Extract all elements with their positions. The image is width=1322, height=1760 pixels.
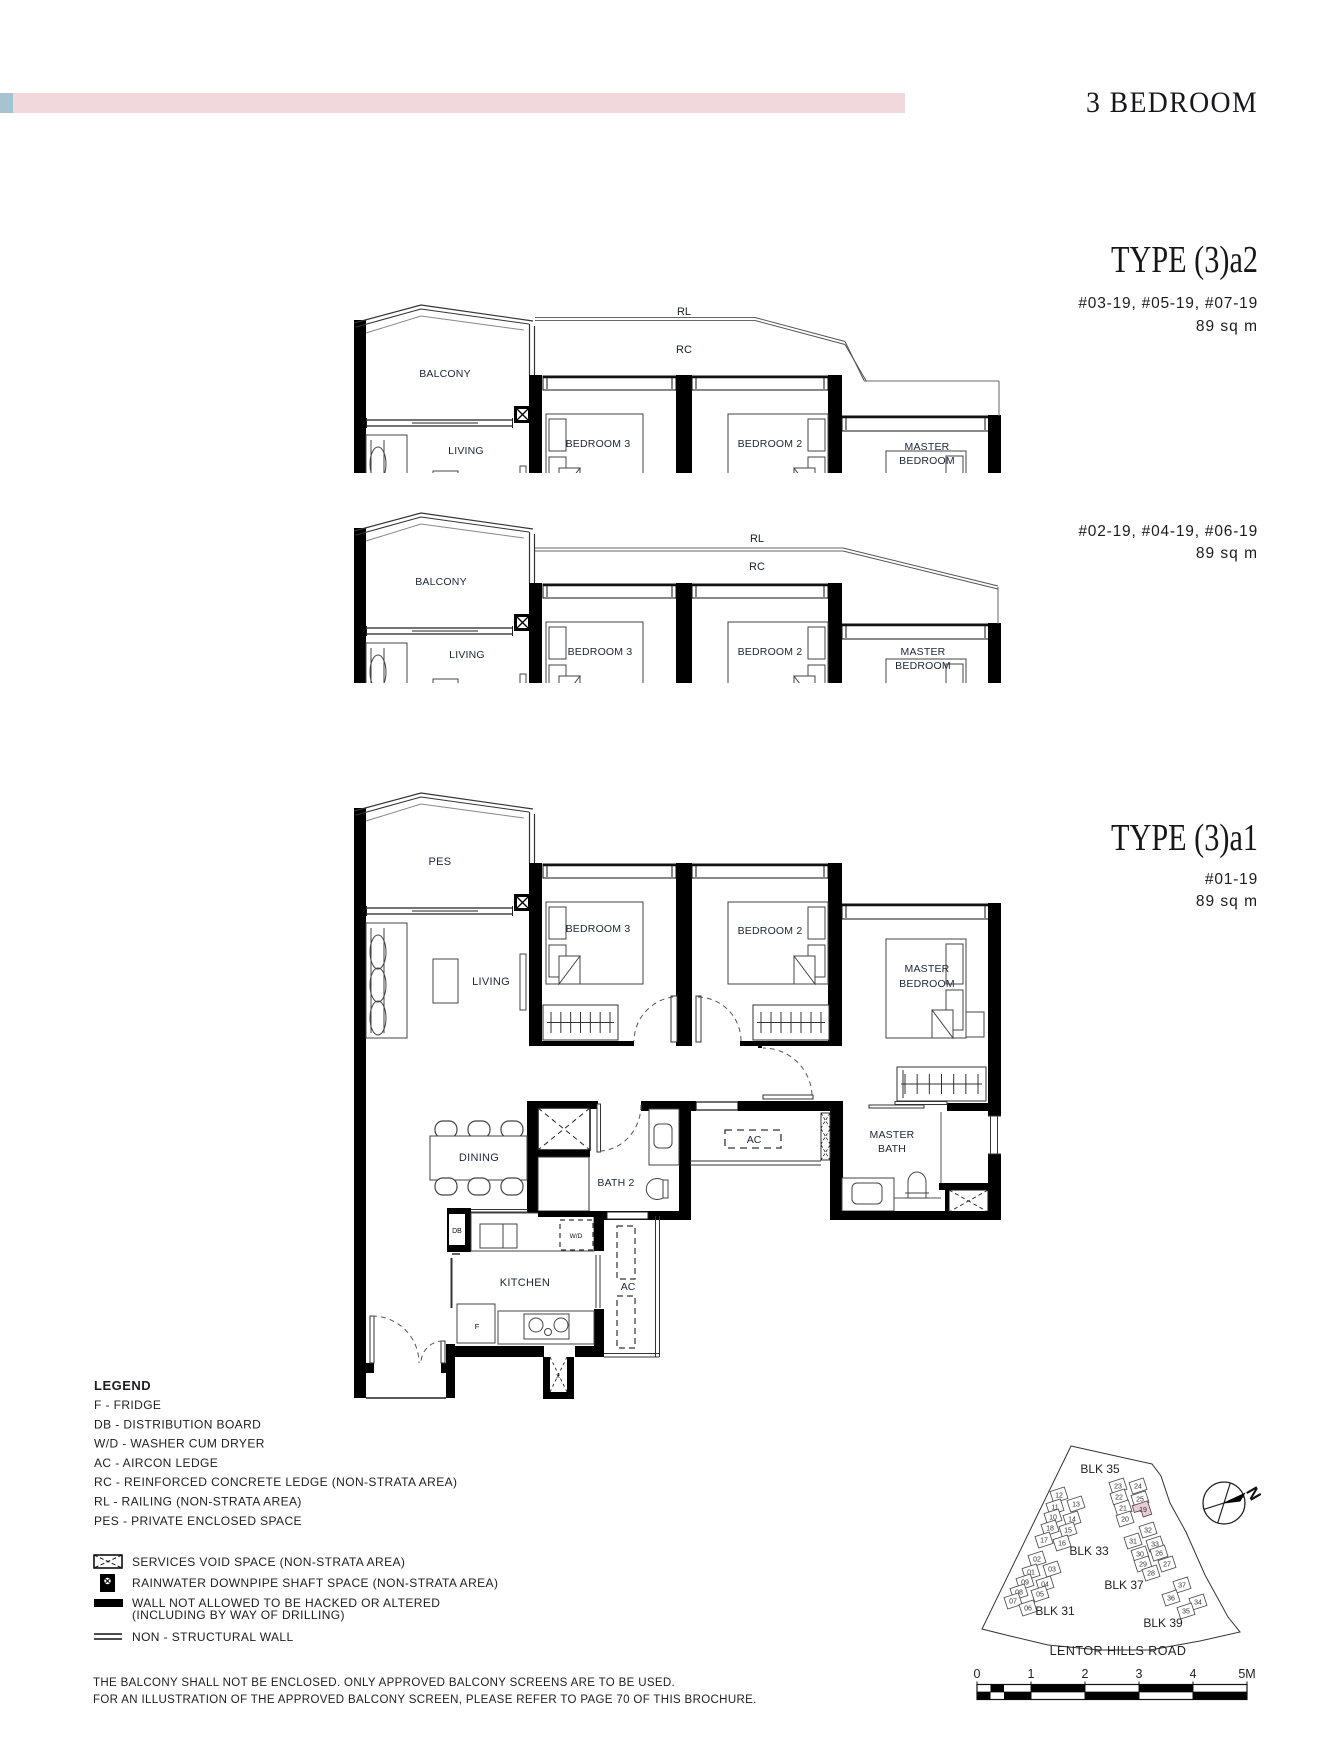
svg-text:BLK 35: BLK 35 [1080,1462,1120,1476]
svg-text:LIVING: LIVING [449,649,485,661]
svg-text:BEDROOM: BEDROOM [899,978,955,990]
svg-text:26: 26 [1155,1551,1163,1558]
svg-text:35: 35 [1182,1609,1190,1616]
svg-text:BATH 2: BATH 2 [597,1177,634,1189]
svg-text:RL - RAILING (NON-STRATA AREA): RL - RAILING (NON-STRATA AREA) [94,1495,302,1509]
svg-text:3 BEDROOM: 3 BEDROOM [1086,86,1258,119]
svg-text:THE BALCONY SHALL NOT BE ENCLO: THE BALCONY SHALL NOT BE ENCLOSED. ONLY … [93,1677,675,1689]
svg-text:05: 05 [1036,1592,1044,1599]
svg-text:BEDROOM 3: BEDROOM 3 [566,923,631,935]
svg-text:BEDROOM 2: BEDROOM 2 [738,646,803,658]
svg-text:DINING: DINING [459,1152,499,1164]
svg-text:36: 36 [1167,1596,1175,1603]
svg-text:34: 34 [1194,1600,1202,1607]
svg-text:NON - STRUCTURAL WALL: NON - STRUCTURAL WALL [132,1630,294,1644]
svg-text:RAINWATER DOWNPIPE SHAFT SPACE: RAINWATER DOWNPIPE SHAFT SPACE (NON-STRA… [132,1576,498,1590]
svg-text:27: 27 [1163,1562,1171,1569]
svg-text:18: 18 [1046,1526,1054,1533]
svg-text:PES: PES [429,856,452,868]
svg-text:24: 24 [1134,1484,1142,1491]
svg-text:MASTER: MASTER [870,1129,915,1141]
svg-text:MASTER: MASTER [905,441,950,453]
svg-text:89 sq m: 89 sq m [1196,545,1258,562]
svg-text:28: 28 [1147,1571,1155,1578]
svg-text:F - FRIDGE: F - FRIDGE [94,1398,161,1412]
svg-text:BLK 33: BLK 33 [1069,1544,1109,1558]
svg-text:SERVICES VOID SPACE (NON-STRAT: SERVICES VOID SPACE (NON-STRATA AREA) [132,1555,405,1569]
svg-text:23: 23 [1114,1484,1122,1491]
svg-text:31: 31 [1129,1539,1137,1546]
svg-text:W/D - WASHER CUM DRYER: W/D - WASHER CUM DRYER [94,1437,265,1451]
svg-text:BALCONY: BALCONY [415,576,467,588]
svg-text:#02-19, #04-19, #06-19: #02-19, #04-19, #06-19 [1078,523,1258,540]
svg-text:LENTOR HILLS ROAD: LENTOR HILLS ROAD [1050,1644,1187,1658]
svg-text:LEGEND: LEGEND [94,1378,151,1393]
svg-text:37: 37 [1178,1583,1186,1590]
svg-text:1: 1 [1028,1667,1035,1681]
svg-text:15: 15 [1064,1528,1072,1535]
svg-text:BEDROOM 2: BEDROOM 2 [738,925,803,937]
svg-text:07: 07 [1009,1599,1017,1606]
svg-text:02: 02 [1033,1557,1041,1564]
svg-text:BEDROOM: BEDROOM [899,455,955,467]
svg-text:BALCONY: BALCONY [419,368,471,380]
svg-text:5M: 5M [1238,1667,1255,1681]
svg-text:RC - REINFORCED CONCRETE LEDGE: RC - REINFORCED CONCRETE LEDGE (NON-STRA… [94,1475,457,1489]
svg-text:MASTER: MASTER [901,646,946,658]
svg-text:21: 21 [1119,1506,1127,1513]
svg-text:0: 0 [974,1667,981,1681]
svg-text:AC - AIRCON LEDGE: AC - AIRCON LEDGE [94,1456,218,1470]
svg-text:BATH: BATH [878,1143,906,1155]
svg-text:F: F [475,1322,480,1331]
svg-text:12: 12 [1055,1493,1063,1500]
svg-text:RL: RL [750,533,764,545]
svg-text:32: 32 [1144,1528,1152,1535]
svg-text:29: 29 [1139,1562,1147,1569]
svg-text:AC: AC [621,1281,636,1293]
svg-text:BEDROOM 3: BEDROOM 3 [566,438,631,450]
svg-text:MASTER: MASTER [905,963,950,975]
svg-text:BLK 37: BLK 37 [1104,1578,1144,1592]
svg-text:2: 2 [1082,1667,1089,1681]
svg-text:06: 06 [1024,1606,1032,1613]
svg-text:FOR AN ILLUSTRATION OF THE APP: FOR AN ILLUSTRATION OF THE APPROVED BALC… [93,1694,757,1706]
svg-text:3: 3 [1136,1667,1143,1681]
svg-text:22: 22 [1115,1495,1123,1502]
svg-text:89 sq m: 89 sq m [1196,318,1258,335]
svg-text:BEDROOM: BEDROOM [895,660,951,672]
svg-text:LIVING: LIVING [448,445,484,457]
svg-text:AC: AC [747,1134,762,1146]
svg-text:DB - DISTRIBUTION BOARD: DB - DISTRIBUTION BOARD [94,1417,261,1431]
svg-text:#01-19: #01-19 [1205,871,1258,888]
svg-text:20: 20 [1121,1517,1129,1524]
svg-text:TYPE (3)a2: TYPE (3)a2 [1111,239,1258,281]
svg-text:DB: DB [452,1228,462,1235]
svg-text:RL: RL [677,306,691,318]
svg-text:BLK 31: BLK 31 [1035,1604,1075,1618]
svg-text:89 sq m: 89 sq m [1196,893,1258,910]
svg-text:16: 16 [1058,1541,1066,1548]
svg-text:03: 03 [1048,1567,1056,1574]
svg-text:PES - PRIVATE ENCLOSED SPACE: PES - PRIVATE ENCLOSED SPACE [94,1514,302,1528]
svg-text:BEDROOM 2: BEDROOM 2 [738,438,803,450]
svg-text:LIVING: LIVING [472,976,510,988]
svg-text:BEDROOM 3: BEDROOM 3 [568,646,633,658]
svg-text:TYPE (3)a1: TYPE (3)a1 [1111,817,1258,859]
svg-text:4: 4 [1190,1667,1197,1681]
svg-text:RC: RC [749,561,765,573]
svg-text:RC: RC [676,344,692,356]
svg-text:17: 17 [1040,1538,1048,1545]
svg-text:BLK 39: BLK 39 [1143,1616,1183,1630]
svg-text:#03-19, #05-19, #07-19: #03-19, #05-19, #07-19 [1078,295,1258,312]
svg-text:(INCLUDING BY WAY OF DRILLING): (INCLUDING BY WAY OF DRILLING) [132,1608,345,1622]
svg-text:W/D: W/D [570,1233,583,1240]
svg-text:x: x [556,1373,560,1380]
svg-text:KITCHEN: KITCHEN [500,1277,550,1289]
svg-text:19: 19 [1139,1507,1147,1514]
svg-text:13: 13 [1072,1502,1080,1509]
